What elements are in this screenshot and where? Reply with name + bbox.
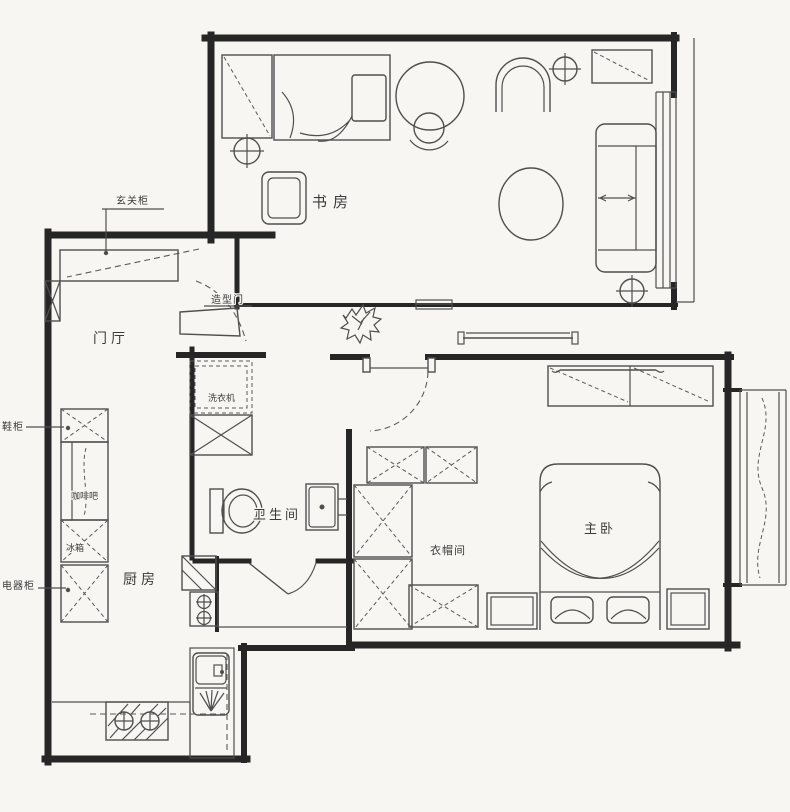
room-label-bathroom: 卫生间 bbox=[253, 508, 301, 523]
shaped-door bbox=[180, 281, 252, 341]
corridor-window-sill bbox=[458, 332, 578, 344]
room-label-entry-hall: 门厅 bbox=[93, 331, 129, 347]
coffee-bar bbox=[61, 442, 108, 520]
study-top-cabinet bbox=[592, 50, 652, 83]
potted-plant bbox=[341, 305, 381, 343]
study-furniture bbox=[222, 50, 656, 307]
annotation-shaped-door: 造型门 bbox=[211, 293, 244, 306]
study-south-window bbox=[416, 300, 452, 309]
bay-window bbox=[740, 390, 786, 585]
study-wardrobe bbox=[222, 55, 272, 138]
room-label-cloakroom: 衣帽间 bbox=[430, 543, 466, 557]
shoe-cabinet bbox=[26, 409, 108, 442]
entry-door-swing bbox=[67, 249, 199, 277]
ceiling-light bbox=[230, 134, 264, 168]
fridge bbox=[61, 520, 108, 562]
annotation-entry-cabinet: 玄关柜 bbox=[116, 194, 149, 207]
annotation-coffee-bar: 咖啡吧 bbox=[71, 490, 98, 502]
entry-cabinet bbox=[60, 209, 178, 281]
arch-chair bbox=[496, 58, 550, 112]
curtain-line bbox=[758, 398, 767, 578]
gas-stove bbox=[106, 702, 168, 740]
annotation-shoe-cabinet: 鞋柜 bbox=[2, 420, 24, 433]
bedroom-door bbox=[363, 358, 435, 431]
nightstand bbox=[667, 589, 709, 629]
floor-plan-drawing: 书房 门厅 厨房 卫生间 衣帽间 主卧 玄关柜 造型门 洗衣机 鞋柜 咖啡吧 冰… bbox=[0, 0, 790, 812]
kitchen-sink bbox=[193, 653, 229, 715]
room-label-master-bedroom: 主卧 bbox=[584, 522, 616, 537]
walls bbox=[45, 35, 740, 762]
bedroom-wardrobe bbox=[548, 366, 713, 406]
annotation-fridge: 冰箱 bbox=[66, 542, 84, 554]
pillow bbox=[551, 597, 593, 623]
floor-plan-sheet: 书房 门厅 厨房 卫生间 衣帽间 主卧 玄关柜 造型门 洗衣机 鞋柜 咖啡吧 冰… bbox=[0, 0, 790, 812]
washing-machine bbox=[190, 361, 252, 413]
hob-unit bbox=[190, 592, 218, 626]
vanity-sink bbox=[306, 484, 347, 530]
cloakroom-wardrobes bbox=[354, 447, 478, 629]
rug bbox=[499, 168, 563, 240]
ceiling-light bbox=[549, 53, 581, 85]
pillow bbox=[607, 597, 649, 623]
sofa bbox=[596, 124, 656, 272]
round-table bbox=[396, 62, 464, 150]
bathroom-door bbox=[249, 563, 316, 594]
bedroom-furniture bbox=[487, 366, 713, 630]
room-label-kitchen: 厨房 bbox=[123, 572, 159, 588]
labels: 书房 门厅 厨房 卫生间 衣帽间 主卧 玄关柜 造型门 洗衣机 鞋柜 咖啡吧 冰… bbox=[2, 193, 616, 592]
daybed bbox=[274, 55, 390, 141]
annotation-appliance-cabinet: 电器柜 bbox=[2, 579, 35, 592]
bed bbox=[540, 464, 660, 630]
bath-cabinet bbox=[190, 415, 252, 455]
curtain-rod bbox=[552, 370, 664, 372]
hall-kitchen bbox=[26, 209, 234, 758]
ceiling-light bbox=[616, 275, 648, 307]
room-label-study: 书房 bbox=[312, 193, 354, 211]
annotation-washing-machine: 洗衣机 bbox=[208, 392, 235, 404]
side-table bbox=[262, 172, 306, 224]
nightstand bbox=[487, 593, 537, 629]
